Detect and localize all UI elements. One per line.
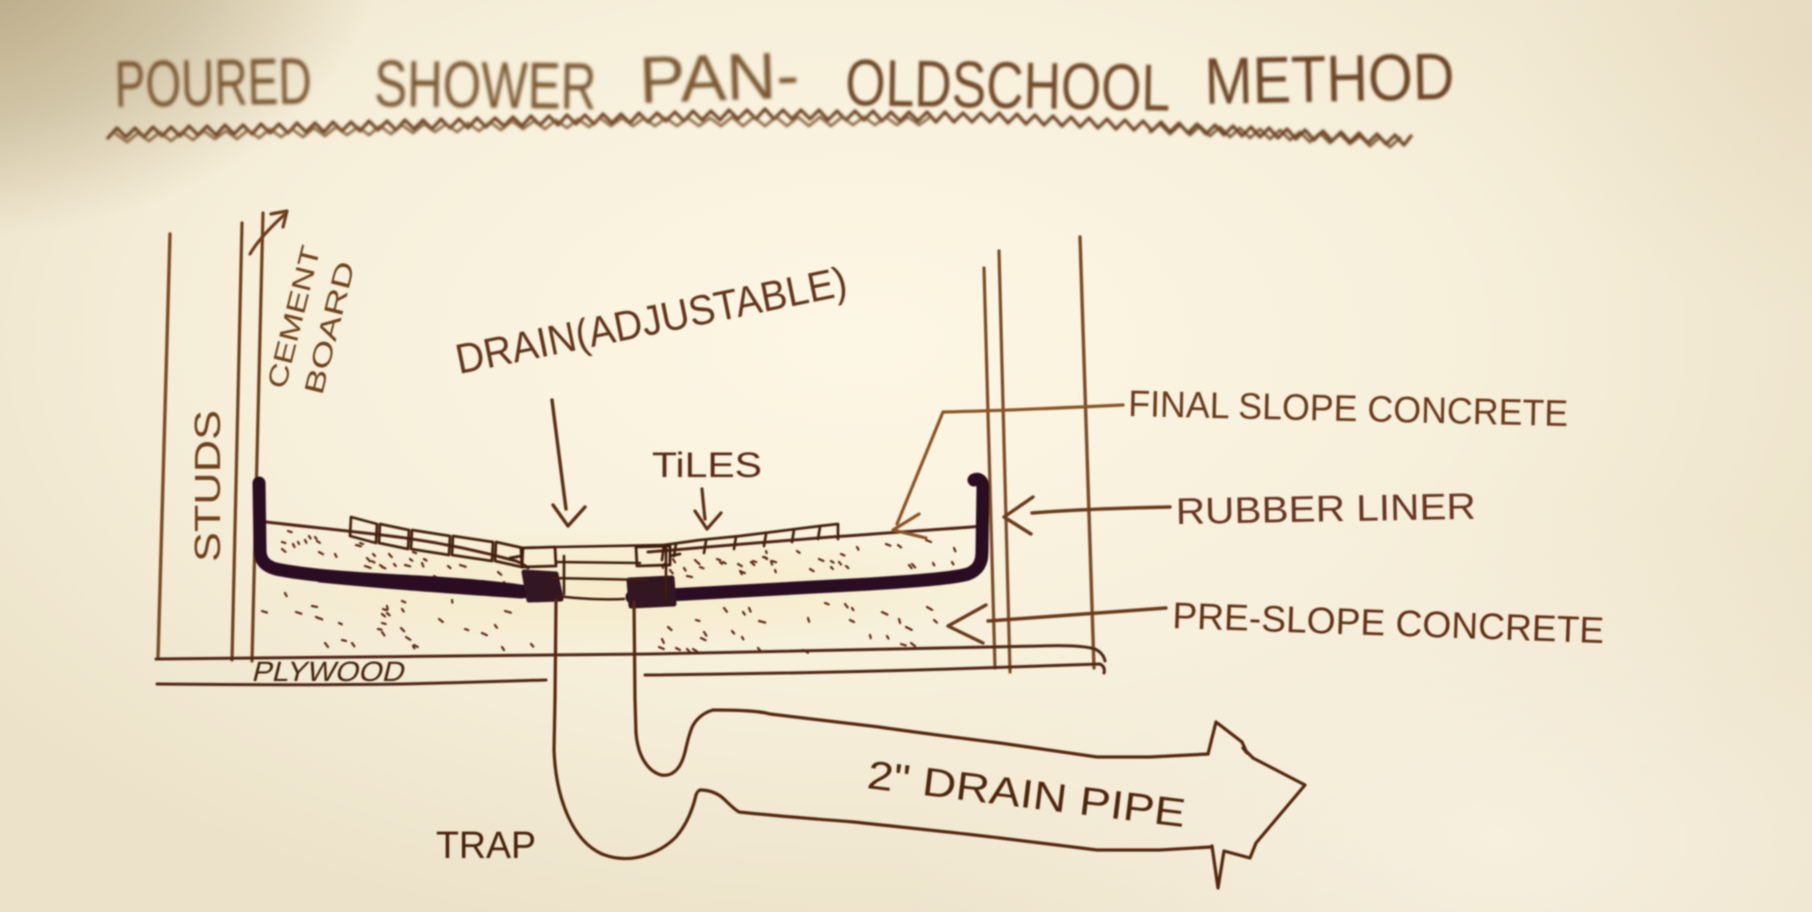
svg-text:TRAP: TRAP (436, 825, 536, 867)
svg-text:POURED: POURED (114, 44, 312, 121)
svg-text:PAN-: PAN- (638, 37, 800, 117)
svg-text:RUBBER LINER: RUBBER LINER (1175, 486, 1476, 532)
svg-text:STUDS: STUDS (187, 410, 228, 562)
svg-text:PLYWOOD: PLYWOOD (249, 656, 409, 688)
svg-text:METHOD: METHOD (1204, 39, 1455, 118)
svg-text:TiLES: TiLES (652, 446, 762, 485)
svg-text:SHOWER: SHOWER (374, 46, 597, 123)
